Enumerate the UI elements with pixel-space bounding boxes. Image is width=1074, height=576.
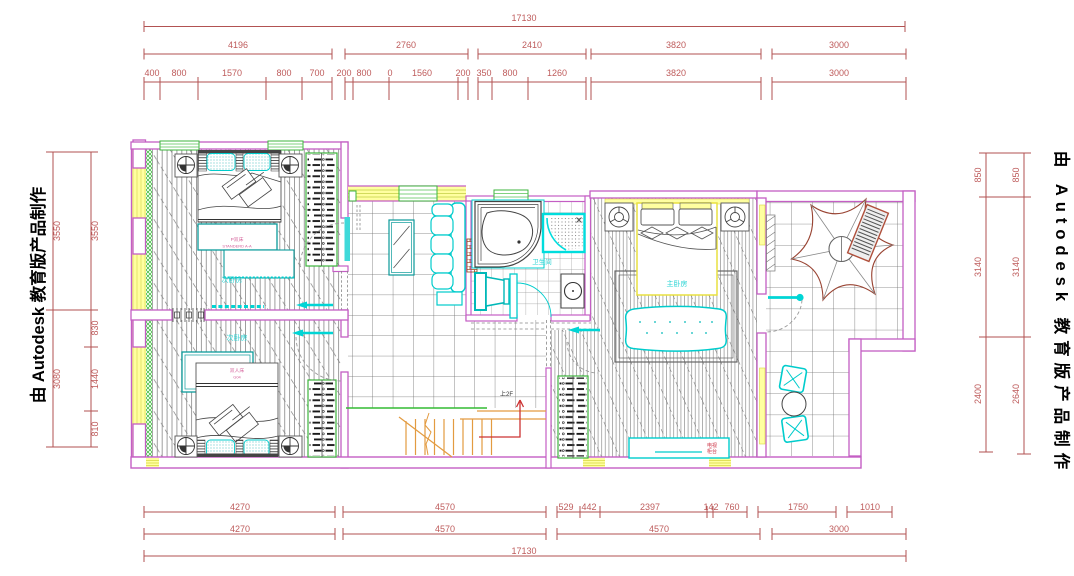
svg-text:3820: 3820: [666, 40, 686, 50]
svg-text:4570: 4570: [649, 524, 669, 534]
svg-text:4270: 4270: [230, 524, 250, 534]
svg-text:17130: 17130: [511, 546, 536, 556]
svg-text:800: 800: [276, 68, 291, 78]
svg-text:1440: 1440: [90, 369, 100, 389]
svg-text:G04: G04: [233, 375, 241, 380]
svg-text:1560: 1560: [412, 68, 432, 78]
svg-text:800: 800: [171, 68, 186, 78]
svg-text:2760: 2760: [396, 40, 416, 50]
svg-text:4570: 4570: [435, 502, 455, 512]
svg-text:由 Autodesk 教育版产品制作: 由 Autodesk 教育版产品制作: [28, 186, 48, 403]
svg-text:由 Autodesk 教育版产品制作: 由 Autodesk 教育版产品制作: [1052, 151, 1072, 475]
svg-text:800: 800: [502, 68, 517, 78]
svg-text:1750: 1750: [788, 502, 808, 512]
svg-text:850: 850: [1011, 167, 1021, 182]
svg-text:1010: 1010: [860, 502, 880, 512]
svg-text:3000: 3000: [829, 524, 849, 534]
svg-text:3080: 3080: [52, 369, 62, 389]
svg-text:柜台: 柜台: [707, 448, 717, 455]
svg-text:电视: 电视: [707, 442, 717, 449]
svg-text:830: 830: [90, 320, 100, 335]
svg-text:3140: 3140: [973, 257, 983, 277]
svg-text:双人床: 双人床: [230, 367, 245, 374]
svg-text:2400: 2400: [973, 384, 983, 404]
svg-text:上2F: 上2F: [500, 390, 513, 398]
svg-text:2397: 2397: [640, 502, 660, 512]
svg-text:17130: 17130: [511, 13, 536, 23]
svg-text:1260: 1260: [547, 68, 567, 78]
svg-text:800: 800: [356, 68, 371, 78]
svg-text:350: 350: [476, 68, 491, 78]
svg-text:主卧房: 主卧房: [667, 279, 688, 288]
svg-text:次卧房: 次卧房: [222, 275, 243, 284]
svg-text:3140: 3140: [1011, 257, 1021, 277]
svg-text:2640: 2640: [1011, 384, 1021, 404]
svg-text:3550: 3550: [52, 221, 62, 241]
svg-text:0: 0: [387, 68, 392, 78]
svg-text:3000: 3000: [829, 40, 849, 50]
svg-text:3550: 3550: [90, 221, 100, 241]
svg-text:760: 760: [724, 502, 739, 512]
svg-text:142: 142: [703, 502, 718, 512]
svg-text:4270: 4270: [230, 502, 250, 512]
svg-text:442: 442: [581, 502, 596, 512]
svg-text:2410: 2410: [522, 40, 542, 50]
svg-text:850: 850: [973, 167, 983, 182]
svg-text:P双床: P双床: [231, 236, 244, 243]
svg-text:200: 200: [455, 68, 470, 78]
svg-text:529: 529: [558, 502, 573, 512]
svg-text:4196: 4196: [228, 40, 248, 50]
svg-text:3820: 3820: [666, 68, 686, 78]
svg-text:200: 200: [336, 68, 351, 78]
svg-text:次卧房: 次卧房: [227, 333, 248, 342]
svg-text:400: 400: [144, 68, 159, 78]
svg-text:4570: 4570: [435, 524, 455, 534]
svg-text:700: 700: [309, 68, 324, 78]
svg-text:3000: 3000: [829, 68, 849, 78]
svg-text:卫生间: 卫生间: [532, 257, 552, 266]
svg-text:STANDERD A-A: STANDERD A-A: [222, 244, 252, 249]
svg-text:810: 810: [90, 421, 100, 436]
svg-text:1570: 1570: [222, 68, 242, 78]
